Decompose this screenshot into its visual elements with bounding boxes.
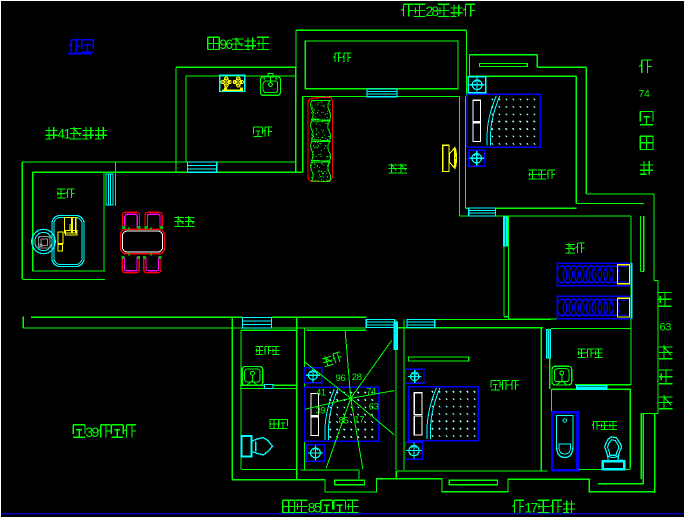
svg-text:9: 9 bbox=[92, 424, 100, 440]
svg-text:8: 8 bbox=[357, 372, 362, 383]
svg-text:8: 8 bbox=[432, 4, 440, 19]
svg-text:1: 1 bbox=[321, 388, 326, 399]
svg-text:3: 3 bbox=[374, 402, 379, 413]
svg-text:4: 4 bbox=[644, 88, 650, 100]
svg-text:3: 3 bbox=[665, 322, 671, 334]
svg-text:6: 6 bbox=[340, 373, 345, 384]
svg-text:6: 6 bbox=[226, 37, 234, 52]
svg-text:7: 7 bbox=[359, 415, 364, 426]
svg-text:9: 9 bbox=[320, 406, 325, 417]
svg-text:4: 4 bbox=[371, 387, 376, 398]
svg-text:1: 1 bbox=[64, 127, 72, 142]
svg-text:5: 5 bbox=[344, 416, 349, 427]
